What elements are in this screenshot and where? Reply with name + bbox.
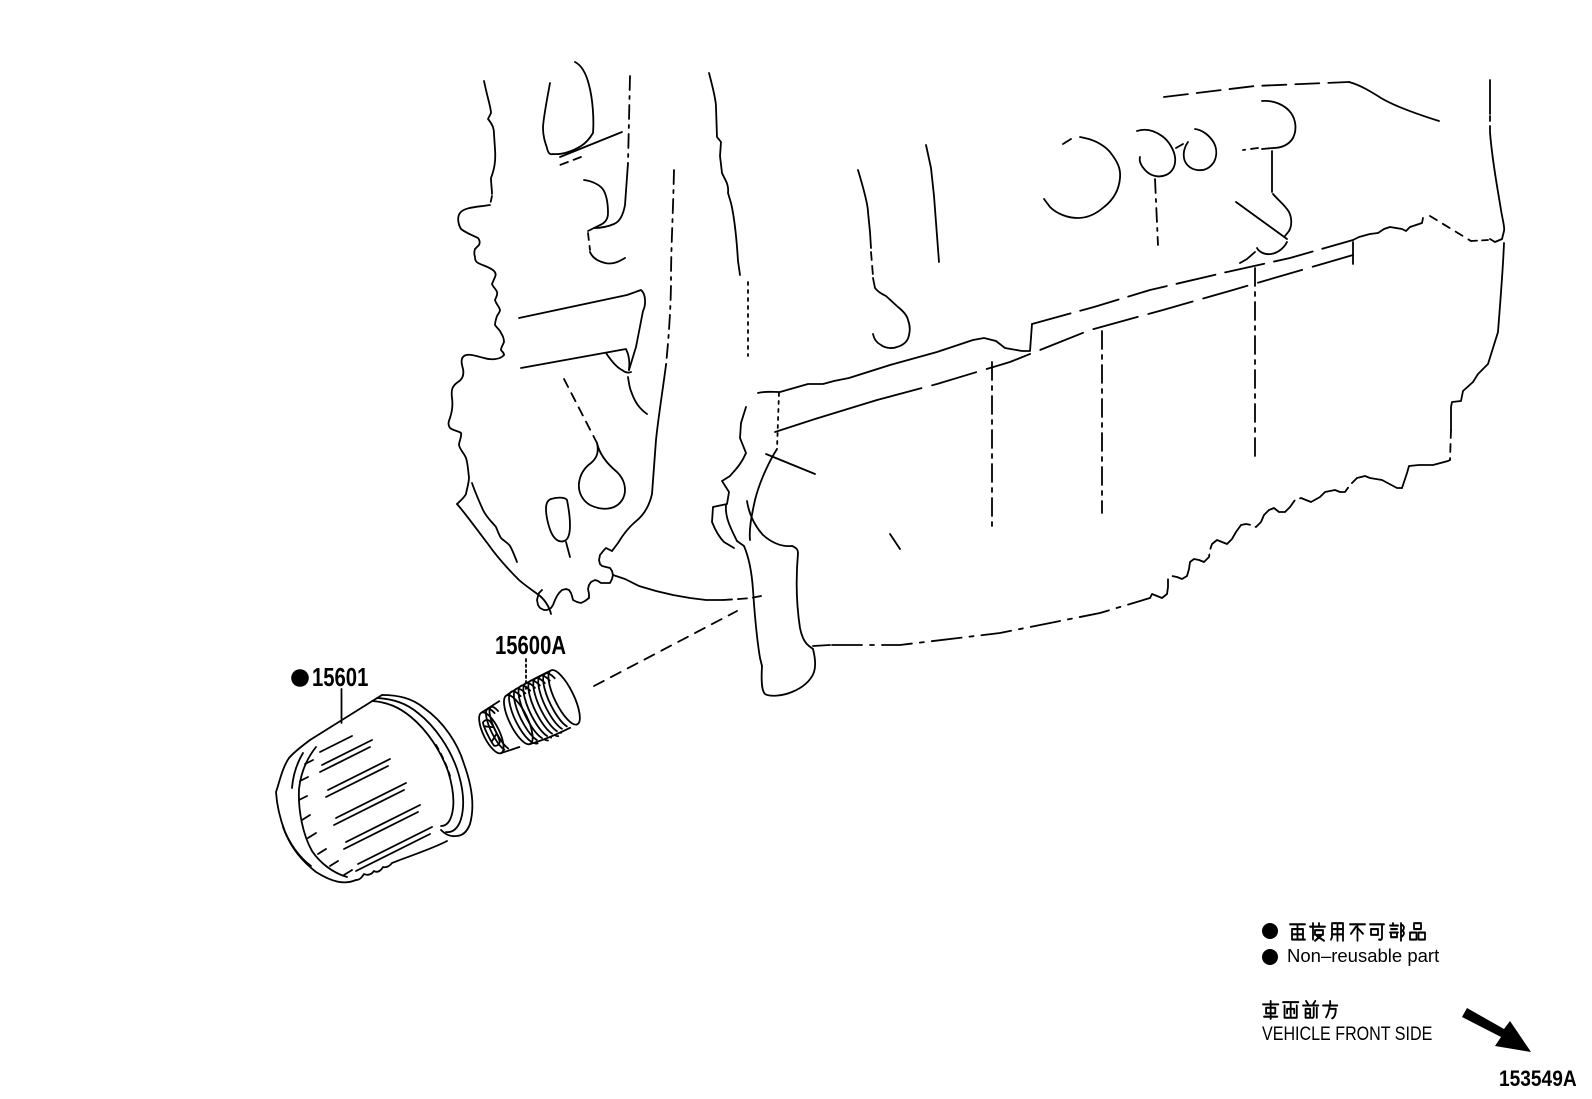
svg-text:153549A: 153549A [1499, 1067, 1577, 1092]
svg-text:VEHICLE FRONT SIDE: VEHICLE FRONT SIDE [1262, 1023, 1432, 1045]
svg-text:15600A: 15600A [495, 631, 566, 660]
svg-text:Non–reusable part: Non–reusable part [1287, 945, 1439, 966]
svg-text:15601: 15601 [312, 663, 368, 692]
